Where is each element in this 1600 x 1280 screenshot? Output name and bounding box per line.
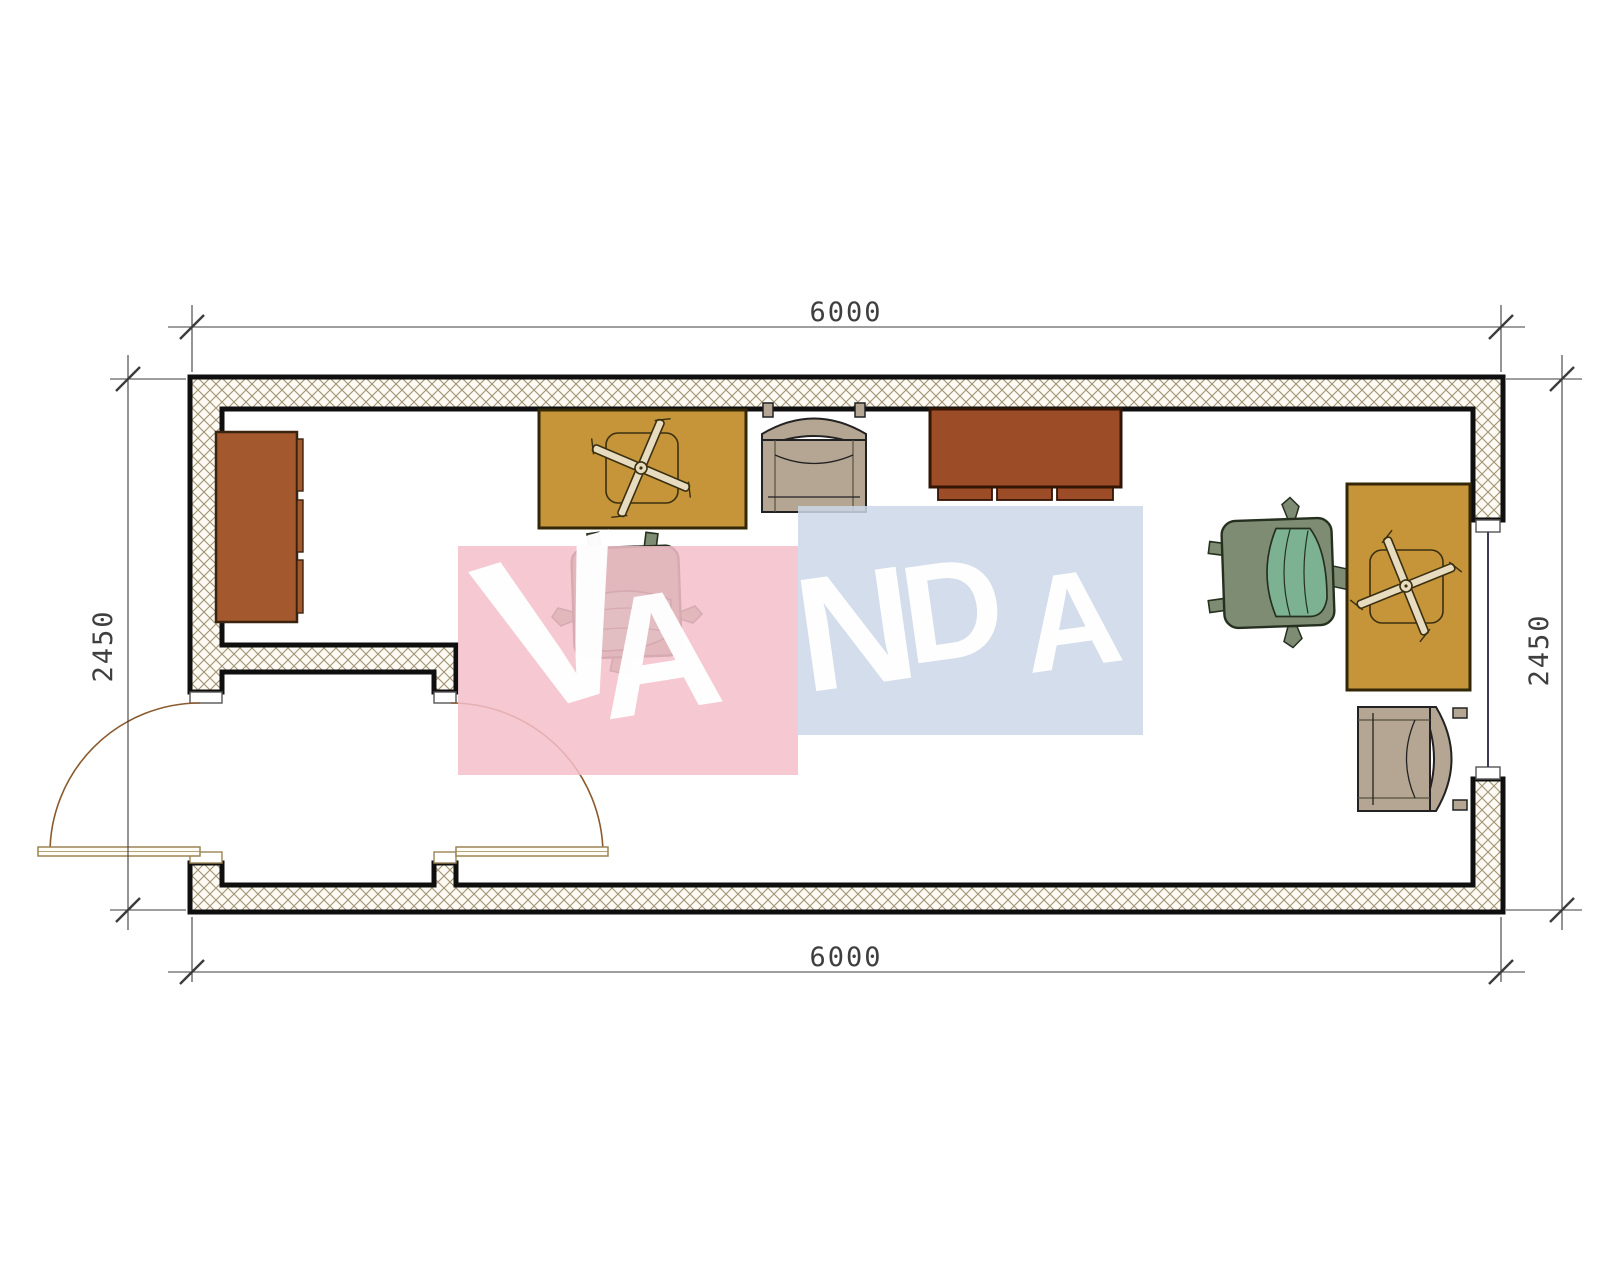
vanda-watermark: V A N D A (0, 0, 1600, 1280)
watermark-letter: D (893, 534, 1013, 687)
watermark-letter: A (1013, 546, 1129, 694)
watermark-letter: A (583, 559, 731, 746)
floor-plan-canvas: 6000 6000 2450 2450 V A N D A (0, 0, 1600, 1280)
